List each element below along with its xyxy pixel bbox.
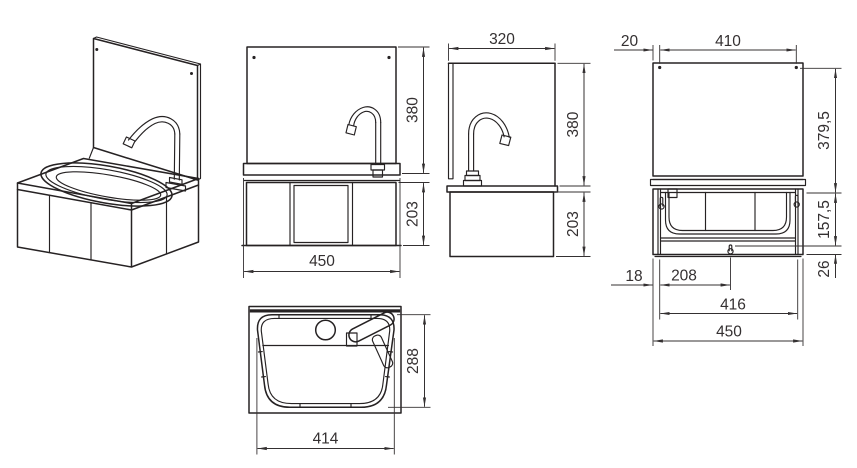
top-outline [249,307,401,414]
dim-top-bowl-depth: 288 [405,348,422,374]
side-faucet [464,113,511,186]
dim-rear-keyhole-bottom: 26 [816,260,833,277]
drawing-canvas: 380 203 450 [0,0,857,468]
rear-outline [651,63,806,257]
top-dimensions: 288 414 [257,315,431,455]
top-drain-hole [316,320,336,340]
side-dimensions: 320 380 203 [449,31,591,257]
dim-rear-screw-spacing: 410 [715,33,741,50]
iso-screw-hole [190,72,193,75]
dim-side-splashback-height: 380 [565,111,582,137]
rear-screw-hole [658,66,661,69]
dim-rear-keyhole-height: 157,5 [816,200,833,239]
front-view: 380 203 450 [242,47,430,278]
dim-rear-keyhole-edge-offset: 18 [625,268,642,285]
front-dimensions: 380 203 450 [244,47,430,278]
dim-front-splashback-height: 380 [405,97,422,123]
side-view: 320 380 203 [447,31,591,257]
dim-rear-screw-edge-offset: 20 [621,33,639,50]
dim-rear-keyhole-center-offset: 208 [671,268,697,285]
iso-splashback-panel [89,37,200,180]
top-splashback-edge [250,309,400,312]
front-faucet [346,107,385,177]
side-outline [447,63,558,256]
top-view: 288 414 [249,307,431,455]
dim-rear-panel-height: 379,5 [816,111,833,150]
dim-rear-overall-width: 450 [716,324,742,341]
rear-keyholes [659,195,799,254]
rear-basin-bowl [666,193,791,235]
top-basin-rim [257,315,394,408]
front-screw-hole [252,56,255,59]
iso-screw-hole [95,48,98,51]
front-screw-hole [387,56,390,59]
dim-top-bowl-width: 414 [313,431,339,448]
dim-front-overall-width: 450 [309,253,335,270]
isometric-view [18,37,201,267]
dim-rear-keyhole-spacing: 416 [720,297,746,314]
rear-view: 20 410 379,5 157,5 26 18 208 416 450 [611,33,842,346]
dim-front-cabinet-height: 203 [405,201,422,227]
technical-drawing-sheet: 380 203 450 [0,0,857,468]
dim-side-depth: 320 [489,31,515,48]
front-outline [242,47,401,246]
rear-screw-hole [795,66,798,69]
dim-side-cabinet-height: 203 [565,211,582,237]
